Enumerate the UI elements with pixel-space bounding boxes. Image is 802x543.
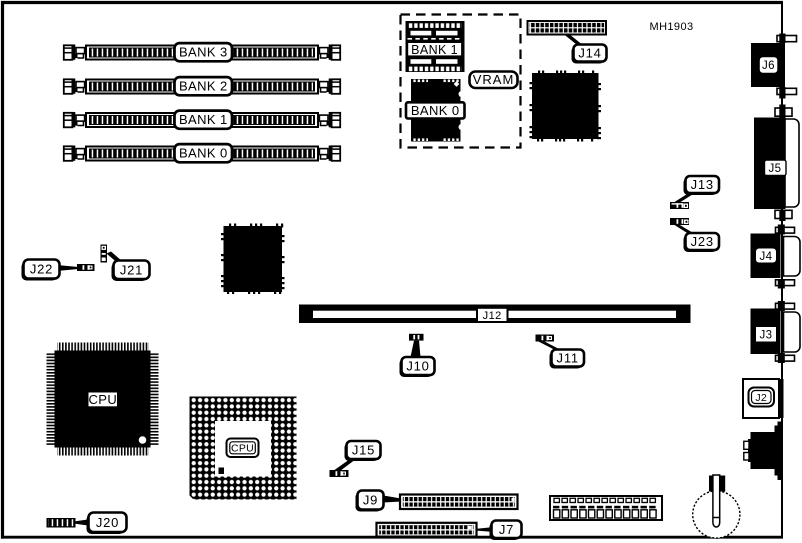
svg-text:MH1903: MH1903 (650, 21, 694, 33)
svg-text:J22: J22 (30, 262, 53, 277)
svg-text:J2: J2 (755, 392, 767, 404)
svg-text:J21: J21 (120, 262, 143, 277)
svg-text:J6: J6 (762, 60, 775, 72)
svg-text:J4: J4 (760, 251, 773, 263)
svg-text:J13: J13 (691, 177, 714, 192)
svg-text:J11: J11 (557, 351, 579, 366)
svg-text:J20: J20 (96, 515, 119, 530)
svg-text:BANK 0: BANK 0 (179, 146, 228, 161)
svg-text:BANK 1: BANK 1 (179, 112, 228, 127)
svg-text:CPU: CPU (88, 392, 117, 407)
svg-text:J5: J5 (769, 163, 782, 175)
svg-text:BANK 0: BANK 0 (411, 103, 460, 118)
svg-text:J15: J15 (352, 443, 375, 458)
svg-text:J12: J12 (483, 310, 502, 322)
svg-text:J9: J9 (363, 493, 378, 508)
svg-text:BANK 2: BANK 2 (179, 79, 228, 94)
svg-text:J7: J7 (499, 522, 514, 537)
svg-text:J23: J23 (691, 234, 714, 249)
svg-text:J3: J3 (760, 330, 773, 342)
svg-text:VRAM: VRAM (473, 72, 515, 87)
svg-text:CPU: CPU (231, 443, 254, 455)
svg-text:BANK 3: BANK 3 (179, 45, 228, 60)
svg-text:J10: J10 (406, 359, 429, 374)
svg-text:BANK 1: BANK 1 (411, 43, 458, 57)
svg-text:J14: J14 (578, 46, 601, 61)
